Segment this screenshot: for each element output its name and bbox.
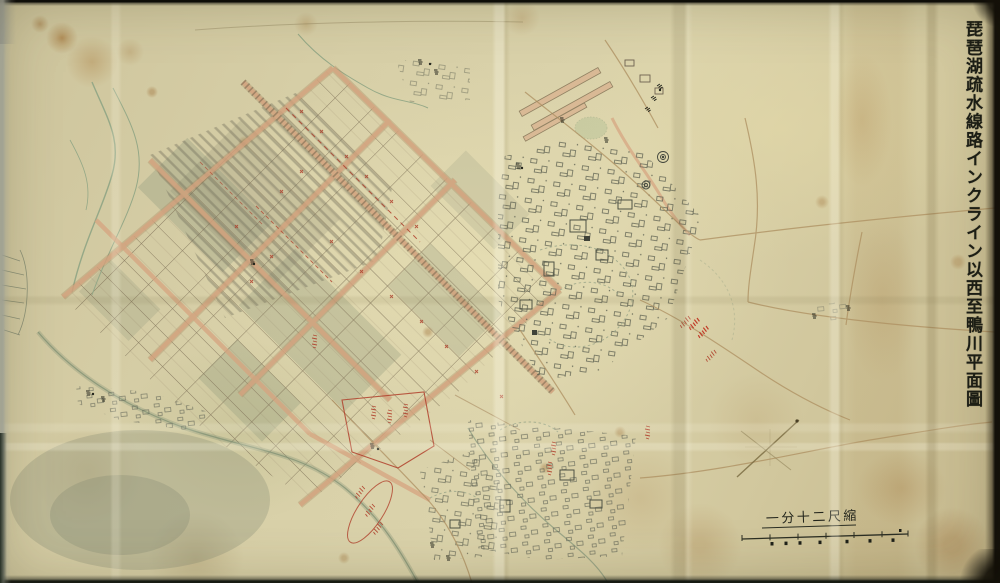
scale-label: 一分十二尺縮	[766, 508, 860, 527]
map-drawing: 一分十二尺縮	[0, 0, 1000, 583]
frame-edge-right	[985, 0, 1000, 583]
survey-cross-mark	[737, 419, 799, 477]
frame-corner-bottom-left	[0, 433, 7, 583]
frame-corner-bottom-right	[958, 549, 1000, 583]
framed-map-photo: 一分十二尺縮 琵琶湖疏水線路インクライン以西至鴨川平面圖	[0, 0, 1000, 583]
frame-edge-top	[0, 0, 1000, 6]
frame-corner-top-right	[970, 0, 1000, 26]
scale-bar: 一分十二尺縮	[742, 508, 908, 546]
frame-edge-bottom	[0, 575, 1000, 583]
frame-corner-top-left	[0, 0, 16, 44]
map-title: 琵琶湖疏水線路インクライン以西至鴨川平面圖	[934, 20, 980, 420]
